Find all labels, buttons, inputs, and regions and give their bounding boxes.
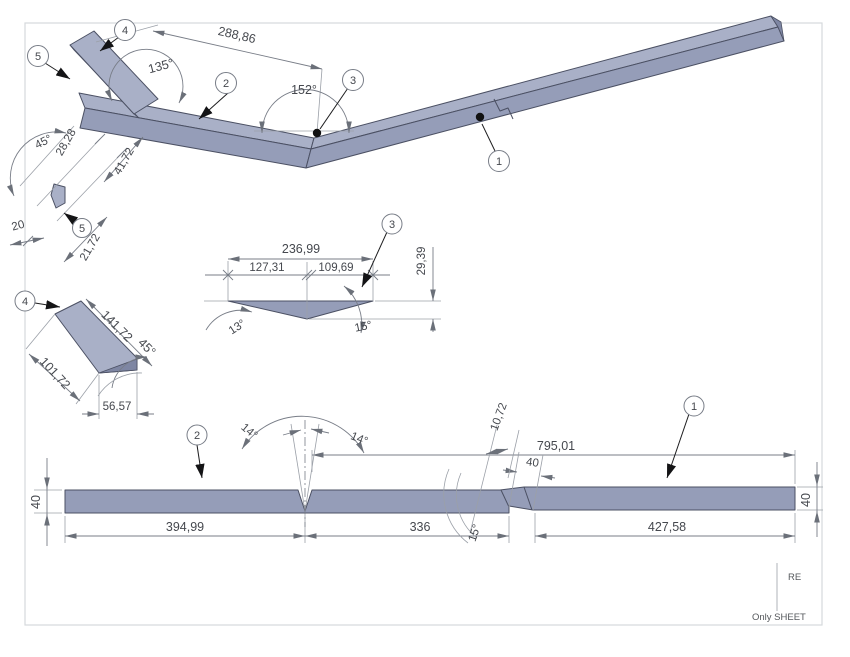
title-block: RE Only SHEET — [752, 563, 806, 623]
tab-detail-view: 141,72 45° 101,72 56,57 4 — [15, 291, 158, 419]
corner-balloon-leader — [64, 213, 75, 221]
svg-text:1: 1 — [496, 156, 502, 168]
balloon-3: 3 — [343, 70, 364, 91]
dim-101-72: 101,72 — [37, 355, 73, 393]
vee-detail-part — [228, 301, 373, 319]
title-block-only-sheet: Only SHEET — [752, 612, 806, 623]
dim-288-86: 288,86 — [217, 24, 257, 46]
dim-427-58: 427,58 — [648, 520, 686, 534]
flat-balloon-2-leader — [197, 445, 202, 478]
dim-41-72: 41,72 — [112, 146, 137, 177]
angle-15-flat: 15° — [467, 523, 484, 543]
vee-balloon-leader — [362, 232, 387, 287]
title-block-re: RE — [788, 572, 801, 583]
svg-text:3: 3 — [389, 219, 395, 231]
dim-20: 20 — [10, 219, 25, 234]
balloon-5: 5 — [28, 46, 49, 67]
svg-text:2: 2 — [194, 430, 200, 442]
corner-detail-part — [51, 184, 65, 208]
dim-40-right: 40 — [799, 493, 813, 507]
balloon-2-flat: 2 — [187, 425, 207, 445]
cad-drawing: 288,86 135° 152° 4 5 2 3 1 — [0, 0, 850, 657]
vee-detail-view: 236,99 127,31 109,69 29,39 13° 15° 3 — [204, 214, 441, 337]
corner-detail-dimension-lines — [10, 126, 143, 262]
balloon-1: 1 — [489, 151, 510, 172]
dim-795-01: 795,01 — [537, 439, 575, 453]
balloon-5-detail: 5 — [73, 219, 92, 238]
angle-14-left: 14° — [238, 422, 259, 442]
svg-text:1: 1 — [691, 401, 697, 413]
corner-detail-view: 45° 28,28 41,72 20 21,72 5 — [10, 126, 143, 263]
dim-236-99: 236,99 — [282, 242, 320, 256]
svg-text:2: 2 — [223, 78, 229, 90]
drawing-sheet: 288,86 135° 152° 4 5 2 3 1 — [0, 0, 850, 657]
dim-109-69: 109,69 — [318, 262, 353, 274]
balloon-4: 4 — [115, 20, 136, 41]
angle-45-tab: 45° — [135, 336, 158, 359]
dim-56-57: 56,57 — [103, 401, 132, 413]
balloon-1-dot — [476, 113, 484, 121]
svg-text:5: 5 — [79, 223, 85, 235]
svg-text:4: 4 — [122, 25, 128, 37]
angle-135: 135° — [147, 56, 176, 76]
flat-balloon-1-leader — [667, 414, 689, 478]
svg-text:4: 4 — [22, 296, 28, 308]
balloon-1-flat: 1 — [684, 396, 704, 416]
svg-text:3: 3 — [350, 75, 356, 87]
dim-394-99: 394,99 — [166, 520, 204, 534]
dim-336: 336 — [410, 520, 431, 534]
dim-40-seg: 40 — [525, 456, 539, 470]
balloon-3-detail: 3 — [382, 214, 402, 234]
angle-13: 13° — [227, 318, 248, 338]
iso-part — [70, 16, 784, 168]
flat-pattern-part — [65, 487, 795, 513]
balloon-3-dot — [313, 129, 321, 137]
angle-14-right: 14° — [349, 430, 370, 448]
angle-45: 45° — [33, 133, 54, 152]
tab-balloon-leader — [35, 303, 60, 307]
dim-127-31: 127,31 — [249, 262, 284, 274]
dim-29-39: 29,39 — [416, 247, 428, 276]
balloon-2: 2 — [216, 73, 237, 94]
angle-15: 15° — [354, 319, 374, 334]
svg-text:5: 5 — [35, 51, 41, 63]
iso-view: 288,86 135° 152° 4 5 2 3 1 — [28, 16, 785, 172]
dim-10-72: 10,72 — [489, 401, 510, 432]
balloon-4-detail: 4 — [15, 291, 35, 311]
flat-pattern-view: 40 394,99 336 427,58 795,01 40 10,72 14°… — [29, 396, 823, 546]
angle-152: 152° — [291, 83, 317, 97]
dim-40-left: 40 — [29, 495, 43, 509]
